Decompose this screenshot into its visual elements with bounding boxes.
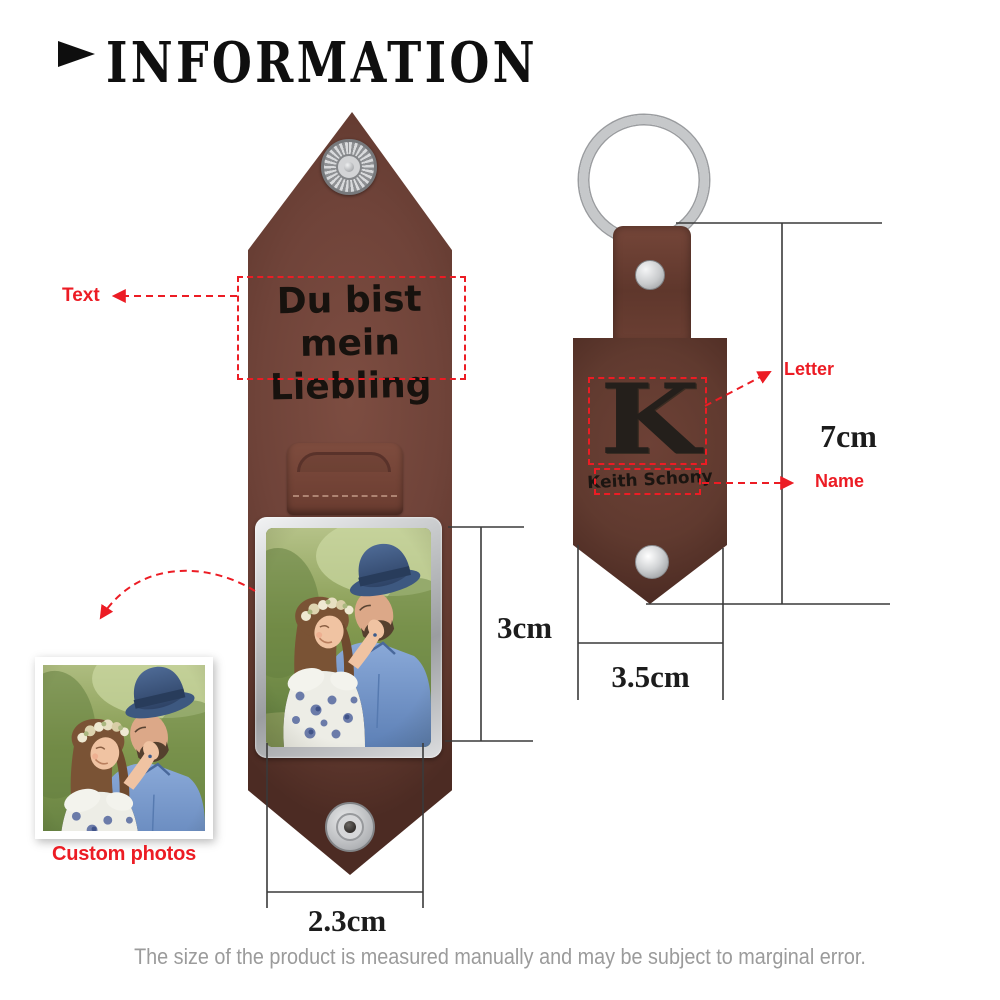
letter-area-dashed-box bbox=[588, 377, 707, 465]
couple-photo bbox=[43, 665, 205, 831]
right-keychain-snap-dome bbox=[635, 545, 669, 579]
strap-stitching bbox=[293, 495, 397, 497]
snap-socket-hole bbox=[344, 821, 356, 833]
left-keychain-snap-socket bbox=[325, 802, 375, 852]
custom-photo-curved-arrow bbox=[102, 571, 255, 616]
keychain-photo bbox=[266, 528, 431, 747]
keychain-height-dimension: 7cm bbox=[820, 418, 877, 455]
photo-width-dimension: 2.3cm bbox=[277, 903, 417, 939]
product-information-graphic: INFORMATION Du bist mein Liebling Custom… bbox=[0, 0, 1000, 1000]
metal-photo-frame bbox=[255, 517, 442, 758]
right-triangle-icon bbox=[58, 41, 95, 67]
page-title: INFORMATION bbox=[106, 30, 538, 96]
name-area-dashed-box bbox=[594, 468, 701, 495]
keychain-width-dimension: 3.5cm bbox=[585, 659, 716, 695]
strap-rivet bbox=[635, 260, 665, 290]
text-area-dashed-box bbox=[237, 276, 466, 380]
letter-label: Letter bbox=[784, 359, 834, 380]
leather-strap-loop bbox=[287, 443, 403, 515]
left-keychain-snap-button bbox=[321, 139, 377, 195]
custom-photos-label: Custom photos bbox=[35, 843, 213, 866]
name-label: Name bbox=[815, 471, 864, 492]
strap-slot bbox=[297, 452, 391, 472]
text-label: Text bbox=[62, 285, 100, 307]
snap-button-dome bbox=[344, 162, 354, 172]
sample-photo bbox=[35, 657, 213, 839]
size-disclaimer: The size of the product is measured manu… bbox=[50, 944, 950, 970]
couple-photo bbox=[266, 528, 431, 747]
photo-height-dimension: 3cm bbox=[497, 610, 552, 646]
